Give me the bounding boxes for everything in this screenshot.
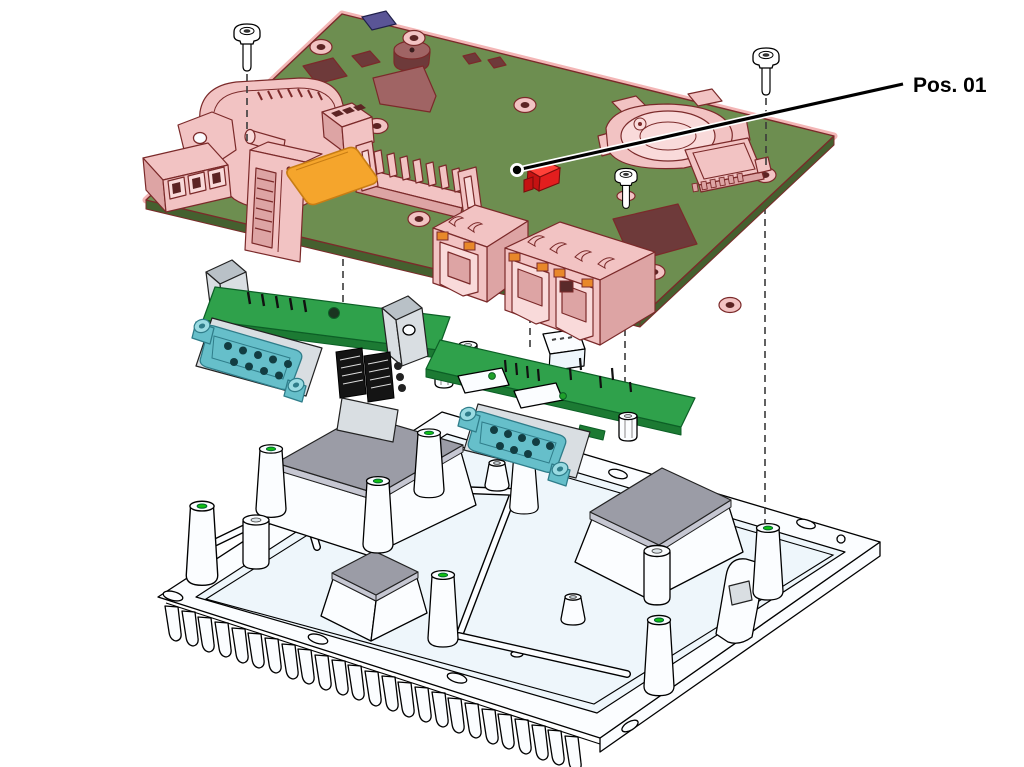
callout-anchor-dot	[513, 166, 521, 174]
callout-label: Pos. 01	[913, 74, 987, 97]
standoff	[619, 412, 637, 441]
exploded-view-diagram: Pos. 01	[0, 0, 1024, 767]
mounting-screw-right	[753, 48, 779, 95]
mounting-screw-left	[234, 24, 260, 71]
serial-adapter-board-left	[192, 260, 450, 442]
heatsink-chassis	[158, 412, 880, 767]
